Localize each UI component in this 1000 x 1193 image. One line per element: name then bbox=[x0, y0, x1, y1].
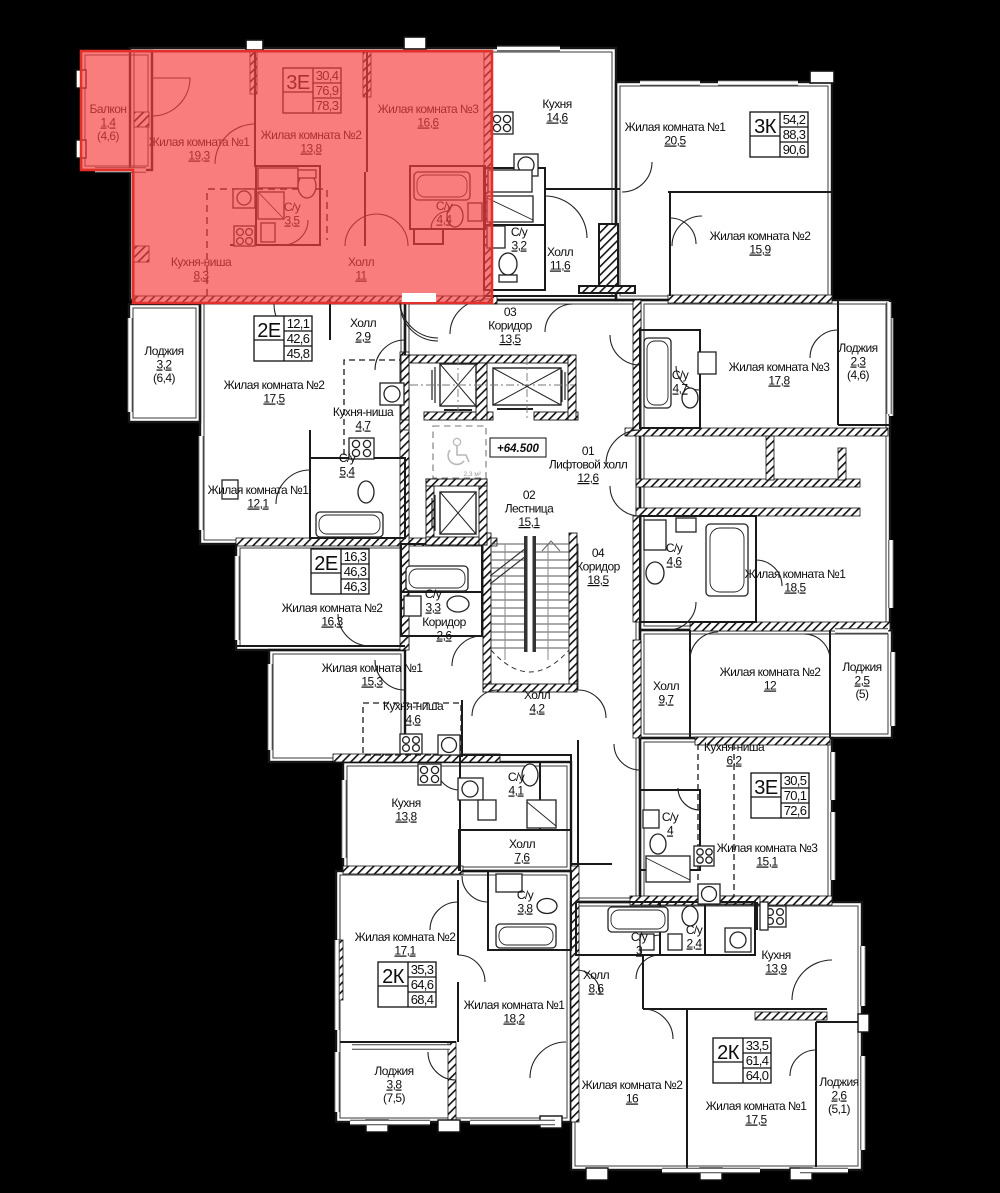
svg-text:3К: 3К bbox=[754, 116, 777, 138]
svg-text:Холл: Холл bbox=[509, 837, 536, 851]
svg-text:88,3: 88,3 bbox=[783, 127, 806, 142]
svg-text:(4,6): (4,6) bbox=[847, 368, 869, 382]
svg-text:(6,4): (6,4) bbox=[153, 371, 175, 385]
svg-text:20,5: 20,5 bbox=[664, 134, 686, 148]
svg-text:3,2: 3,2 bbox=[156, 358, 172, 372]
svg-text:2,6: 2,6 bbox=[436, 629, 452, 643]
svg-text:4,7: 4,7 bbox=[355, 419, 371, 433]
svg-text:4,2: 4,2 bbox=[529, 702, 545, 716]
svg-text:16,3: 16,3 bbox=[344, 549, 367, 564]
svg-text:30,5: 30,5 bbox=[784, 773, 807, 788]
svg-text:Жилая комната №2: Жилая комната №2 bbox=[710, 229, 812, 243]
svg-text:13,8: 13,8 bbox=[395, 810, 417, 824]
svg-text:Жилая комната №1: Жилая комната №1 bbox=[625, 120, 727, 134]
svg-text:Лоджия: Лоджия bbox=[838, 341, 877, 355]
svg-text:2Е: 2Е bbox=[314, 553, 338, 575]
svg-text:С/у: С/у bbox=[511, 225, 528, 239]
svg-text:2,3 м²: 2,3 м² bbox=[464, 471, 482, 478]
svg-text:3,2: 3,2 bbox=[511, 239, 527, 253]
svg-text:Лифтовой холл: Лифтовой холл bbox=[549, 458, 628, 472]
svg-text:Кухня-ниша: Кухня-ниша bbox=[333, 405, 394, 419]
svg-text:С/у: С/у bbox=[672, 368, 689, 382]
svg-text:13,5: 13,5 bbox=[499, 332, 521, 346]
svg-text:11,6: 11,6 bbox=[550, 259, 571, 273]
svg-text:64,6: 64,6 bbox=[411, 977, 434, 992]
svg-text:9,7: 9,7 bbox=[658, 693, 674, 707]
svg-text:Кухня: Кухня bbox=[761, 948, 790, 962]
svg-text:Лоджия: Лоджия bbox=[144, 344, 183, 358]
svg-text:45,8: 45,8 bbox=[287, 346, 310, 361]
svg-text:Кухня-ниша: Кухня-ниша bbox=[383, 699, 444, 713]
svg-text:4,7: 4,7 bbox=[672, 382, 688, 396]
svg-text:3Е: 3Е bbox=[754, 777, 778, 799]
svg-text:Жилая комната №1: Жилая комната №1 bbox=[322, 661, 424, 675]
svg-text:2,9: 2,9 bbox=[355, 330, 371, 344]
svg-text:Жилая комната №2: Жилая комната №2 bbox=[582, 1078, 684, 1092]
svg-text:4,6: 4,6 bbox=[666, 555, 682, 569]
svg-text:90,6: 90,6 bbox=[783, 142, 806, 157]
svg-text:04: 04 bbox=[592, 546, 605, 560]
svg-text:54,2: 54,2 bbox=[783, 112, 806, 127]
svg-text:Жилая комната №1: Жилая комната №1 bbox=[706, 1099, 808, 1113]
svg-text:С/у: С/у bbox=[425, 587, 442, 601]
svg-text:42,6: 42,6 bbox=[287, 331, 310, 346]
svg-text:02: 02 bbox=[523, 488, 536, 502]
svg-text:Лоджия: Лоджия bbox=[842, 660, 881, 674]
svg-text:12: 12 bbox=[764, 679, 777, 693]
svg-text:70,1: 70,1 bbox=[784, 788, 807, 803]
svg-text:8,6: 8,6 bbox=[588, 982, 604, 996]
svg-text:Кухня: Кухня bbox=[391, 796, 420, 810]
svg-text:Холл: Холл bbox=[547, 245, 574, 259]
svg-text:01: 01 bbox=[582, 444, 595, 458]
svg-text:Холл: Холл bbox=[583, 968, 610, 982]
svg-text:(7,5): (7,5) bbox=[383, 1091, 405, 1105]
svg-text:+64.500: +64.500 bbox=[497, 443, 539, 455]
svg-text:С/у: С/у bbox=[662, 810, 679, 824]
svg-text:03: 03 bbox=[504, 305, 517, 319]
svg-text:2К: 2К bbox=[382, 966, 405, 988]
svg-text:С/у: С/у bbox=[508, 770, 525, 784]
svg-text:46,3: 46,3 bbox=[344, 579, 367, 594]
svg-text:Жилая комната №1: Жилая комната №1 bbox=[208, 483, 310, 497]
svg-text:Жилая комната №2: Жилая комната №2 bbox=[224, 378, 326, 392]
svg-text:16: 16 bbox=[626, 1092, 639, 1106]
svg-text:2,3: 2,3 bbox=[850, 355, 866, 369]
svg-text:12,6: 12,6 bbox=[577, 471, 599, 485]
svg-text:17,8: 17,8 bbox=[768, 374, 790, 388]
svg-text:17,1: 17,1 bbox=[394, 944, 416, 958]
svg-text:15,9: 15,9 bbox=[749, 243, 771, 257]
svg-text:(5): (5) bbox=[855, 687, 869, 701]
svg-text:С/у: С/у bbox=[631, 930, 648, 944]
svg-text:Жилая комната №1: Жилая комната №1 bbox=[464, 998, 566, 1012]
svg-text:12,1: 12,1 bbox=[287, 316, 310, 331]
svg-text:61,4: 61,4 bbox=[746, 1053, 769, 1068]
svg-text:2К: 2К bbox=[717, 1042, 740, 1064]
svg-text:С/у: С/у bbox=[339, 451, 356, 465]
svg-text:2Е: 2Е bbox=[257, 320, 281, 342]
svg-text:68,4: 68,4 bbox=[411, 992, 434, 1007]
svg-text:Холл: Холл bbox=[524, 688, 551, 702]
svg-text:2,6: 2,6 bbox=[831, 1089, 847, 1103]
svg-text:33,5: 33,5 bbox=[746, 1038, 769, 1053]
svg-text:15,1: 15,1 bbox=[518, 515, 540, 529]
svg-text:4: 4 bbox=[667, 824, 674, 838]
svg-text:Лоджия: Лоджия bbox=[819, 1075, 858, 1089]
svg-text:15,1: 15,1 bbox=[756, 855, 778, 869]
svg-text:7,6: 7,6 bbox=[514, 851, 530, 865]
svg-text:2,5: 2,5 bbox=[854, 674, 870, 688]
svg-text:64,0: 64,0 bbox=[746, 1068, 769, 1083]
svg-text:Холл: Холл bbox=[653, 679, 680, 693]
svg-text:16,3: 16,3 bbox=[321, 615, 343, 629]
svg-text:С/у: С/у bbox=[666, 541, 683, 555]
svg-text:Жилая комната №2: Жилая комната №2 bbox=[720, 665, 822, 679]
svg-text:Лестница: Лестница bbox=[505, 502, 554, 516]
svg-text:Жилая комната №1: Жилая комната №1 bbox=[745, 567, 847, 581]
svg-text:3: 3 bbox=[636, 944, 643, 958]
svg-text:С/у: С/у bbox=[686, 923, 703, 937]
svg-text:Коридор: Коридор bbox=[488, 319, 532, 333]
svg-text:17,5: 17,5 bbox=[745, 1113, 767, 1127]
svg-text:3,3: 3,3 bbox=[425, 601, 441, 615]
svg-text:(5,1): (5,1) bbox=[828, 1102, 850, 1116]
svg-text:Коридор: Коридор bbox=[576, 560, 620, 574]
svg-text:2,4: 2,4 bbox=[686, 937, 702, 951]
svg-text:Жилая комната №3: Жилая комната №3 bbox=[729, 360, 831, 374]
svg-text:15,3: 15,3 bbox=[361, 675, 383, 689]
svg-text:Жилая комната №2: Жилая комната №2 bbox=[355, 930, 457, 944]
svg-text:18,5: 18,5 bbox=[587, 573, 609, 587]
svg-text:С/у: С/у bbox=[517, 888, 534, 902]
svg-text:Холл: Холл bbox=[350, 316, 377, 330]
svg-text:72,6: 72,6 bbox=[784, 803, 807, 818]
svg-text:12,1: 12,1 bbox=[247, 497, 269, 511]
svg-text:Жилая комната №3: Жилая комната №3 bbox=[717, 841, 819, 855]
svg-text:14,6: 14,6 bbox=[546, 111, 568, 125]
svg-text:3,8: 3,8 bbox=[517, 902, 533, 916]
svg-text:Кухня: Кухня bbox=[542, 97, 571, 111]
svg-text:13,9: 13,9 bbox=[765, 962, 787, 976]
svg-text:Коридор: Коридор bbox=[422, 615, 466, 629]
svg-text:4,1: 4,1 bbox=[508, 784, 524, 798]
svg-text:35,3: 35,3 bbox=[411, 962, 434, 977]
svg-text:3,8: 3,8 bbox=[386, 1078, 402, 1092]
svg-text:18,5: 18,5 bbox=[784, 581, 806, 595]
svg-text:4,6: 4,6 bbox=[405, 713, 421, 727]
svg-text:Жилая комната №2: Жилая комната №2 bbox=[282, 601, 384, 615]
svg-text:46,3: 46,3 bbox=[344, 564, 367, 579]
svg-text:Лоджия: Лоджия bbox=[374, 1064, 413, 1078]
svg-text:17,5: 17,5 bbox=[263, 392, 285, 406]
svg-text:Кухня-ниша: Кухня-ниша bbox=[704, 740, 765, 754]
svg-text:18,2: 18,2 bbox=[503, 1012, 525, 1026]
svg-text:5,4: 5,4 bbox=[339, 465, 355, 479]
svg-text:6,2: 6,2 bbox=[726, 754, 742, 768]
